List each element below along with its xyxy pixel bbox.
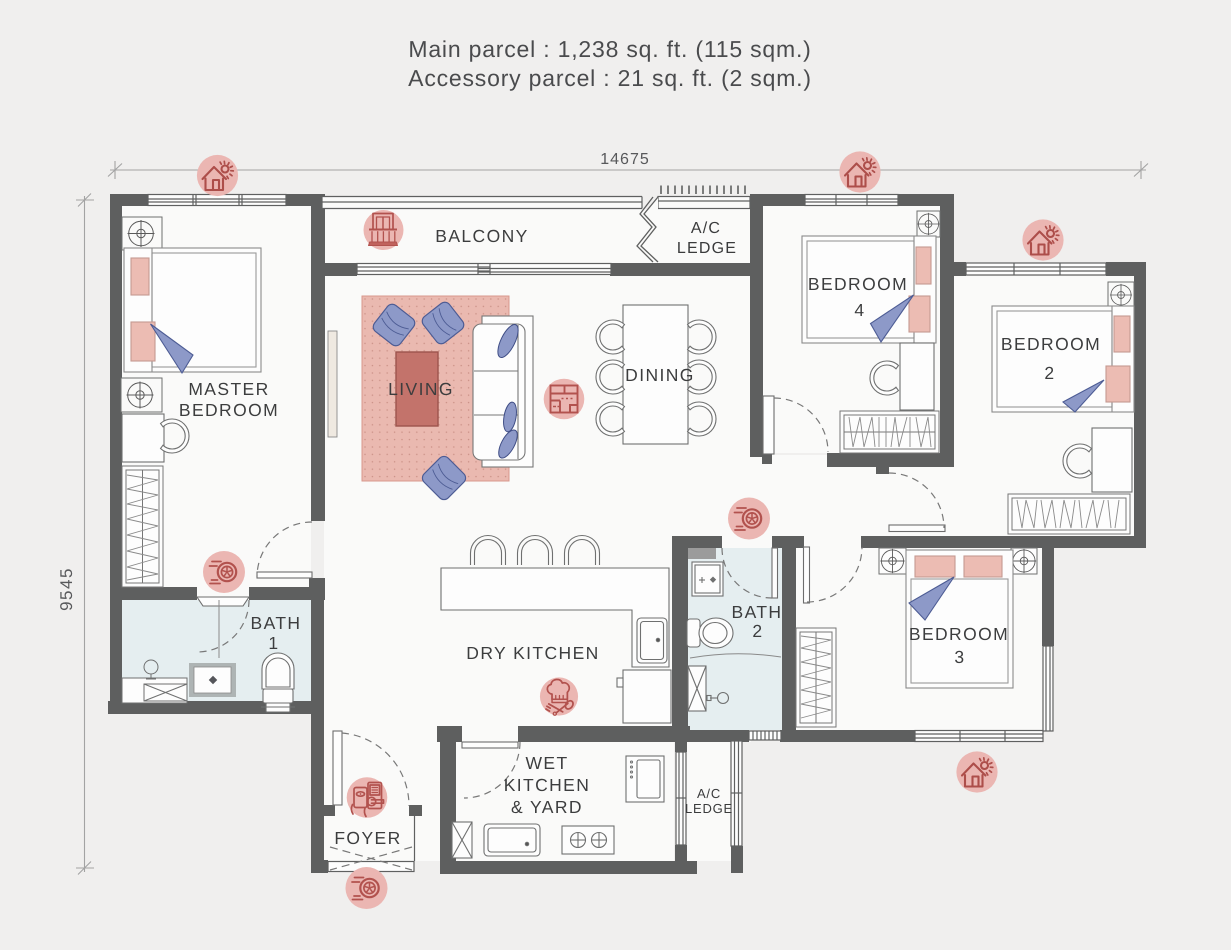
svg-text:DINING: DINING xyxy=(625,365,695,385)
svg-text:BEDROOM: BEDROOM xyxy=(1001,334,1101,354)
svg-text:DRY KITCHEN: DRY KITCHEN xyxy=(466,643,599,663)
svg-text:1: 1 xyxy=(268,633,279,653)
svg-text:9545: 9545 xyxy=(57,567,76,611)
svg-text:Accessory parcel : 21 sq. ft.: Accessory parcel : 21 sq. ft. (2 sqm.) xyxy=(408,65,812,91)
svg-text:BEDROOM: BEDROOM xyxy=(909,624,1009,644)
svg-text:LEDGE: LEDGE xyxy=(685,801,733,816)
svg-text:WET: WET xyxy=(525,753,568,773)
svg-text:BEDROOM: BEDROOM xyxy=(179,400,279,420)
svg-text:A/C: A/C xyxy=(691,220,721,237)
svg-text:14675: 14675 xyxy=(600,151,650,168)
svg-text:MASTER: MASTER xyxy=(188,379,269,399)
svg-text:BALCONY: BALCONY xyxy=(435,226,528,246)
svg-text:KITCHEN: KITCHEN xyxy=(504,775,591,795)
svg-text:FOYER: FOYER xyxy=(334,828,401,848)
svg-text:3: 3 xyxy=(954,647,965,667)
svg-text:BATH: BATH xyxy=(732,602,783,622)
svg-text:LIVING: LIVING xyxy=(388,379,454,399)
svg-text:BATH: BATH xyxy=(251,613,302,633)
svg-text:Main parcel : 1,238 sq. ft. (1: Main parcel : 1,238 sq. ft. (115 sqm.) xyxy=(408,36,811,62)
svg-text:A/C: A/C xyxy=(697,786,721,801)
svg-text:2: 2 xyxy=(752,621,763,641)
svg-text:LEDGE: LEDGE xyxy=(677,240,737,257)
svg-text:& YARD: & YARD xyxy=(511,797,583,817)
svg-text:2: 2 xyxy=(1044,363,1055,383)
svg-text:BEDROOM: BEDROOM xyxy=(808,274,908,294)
svg-text:4: 4 xyxy=(854,300,865,320)
